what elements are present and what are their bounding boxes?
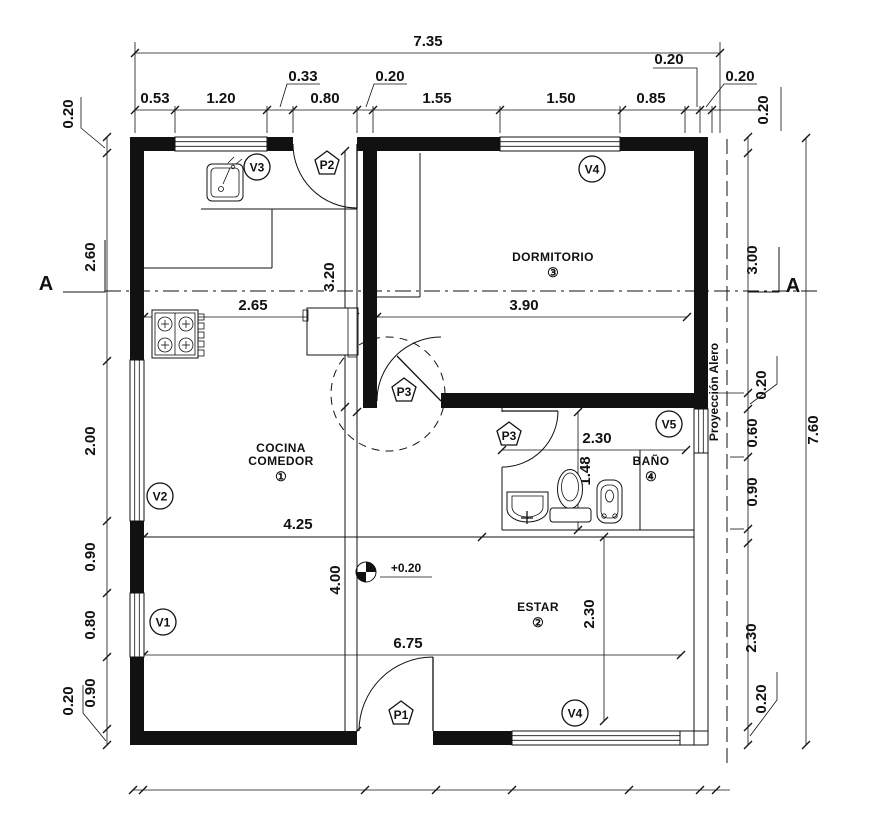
dim-living-width: 6.75 xyxy=(393,635,422,652)
dim-right-2: 3.00 xyxy=(744,245,761,274)
window-v4-top xyxy=(500,137,620,151)
dim-offset-020c: 0.20 xyxy=(725,68,754,85)
cabinet xyxy=(303,308,358,357)
section-label-right: A xyxy=(786,275,800,297)
tag-p3-bath: P3 xyxy=(502,429,517,443)
tag-p1: P1 xyxy=(394,708,409,722)
window-v1 xyxy=(130,593,144,657)
dim-overall-height: 7.60 xyxy=(805,415,822,444)
room-bath-name: BAÑO xyxy=(633,453,670,468)
room-kitchen-line1: COCINA xyxy=(256,441,306,455)
dim-left-7: 0.20 xyxy=(60,686,77,715)
dim-right-7: 0.20 xyxy=(753,684,770,713)
room-living-name: ESTAR xyxy=(517,600,559,614)
stove xyxy=(152,310,204,358)
floor-plan-page: A A Proyección Alero 2.65 3.90 3. xyxy=(0,0,875,815)
tag-p2: P2 xyxy=(320,158,335,172)
dim-top-4: 1.55 xyxy=(422,90,451,107)
dim-top-3: 0.80 xyxy=(310,90,339,107)
dim-bedroom-width: 3.90 xyxy=(509,297,538,314)
dim-bath-width: 2.30 xyxy=(582,430,611,447)
bidet xyxy=(597,480,622,523)
dim-passage-height: 3.20 xyxy=(321,262,338,291)
dim-top-2: 1.20 xyxy=(206,90,235,107)
dim-offset-020a: 0.20 xyxy=(375,68,404,85)
tag-p3-bedroom: P3 xyxy=(397,385,412,399)
dim-living-height: 2.30 xyxy=(581,599,598,628)
tag-v5: V5 xyxy=(662,418,677,432)
dim-passage-depth: 4.00 xyxy=(327,565,344,594)
dim-right-4: 0.60 xyxy=(744,418,761,447)
level-value: +0.20 xyxy=(391,561,422,575)
section-label-left: A xyxy=(39,273,53,295)
dim-offset-033: 0.33 xyxy=(288,68,317,85)
tag-v2: V2 xyxy=(153,490,168,504)
dim-left-3: 2.00 xyxy=(82,426,99,455)
room-bath-number: ④ xyxy=(645,469,657,484)
dim-right-6: 2.30 xyxy=(743,623,760,652)
room-living-number: ② xyxy=(532,615,544,630)
window-v5 xyxy=(694,409,708,453)
room-bedroom-number: ③ xyxy=(547,265,559,280)
dim-left-1: 0.20 xyxy=(60,99,77,128)
dim-top-6: 0.85 xyxy=(636,90,665,107)
room-kitchen-number: ① xyxy=(275,469,287,484)
tag-v3: V3 xyxy=(250,161,265,175)
dim-top-1: 0.53 xyxy=(140,90,169,107)
eave-label: Proyección Alero xyxy=(707,343,721,441)
window-v2 xyxy=(130,360,144,521)
tag-v1: V1 xyxy=(156,616,171,630)
dim-overall-width: 7.35 xyxy=(413,33,442,50)
dim-top-5: 1.50 xyxy=(546,90,575,107)
room-bedroom-name: DORMITORIO xyxy=(512,250,594,264)
window-v3 xyxy=(175,137,267,151)
dim-offset-020d: 0.20 xyxy=(755,95,772,124)
dim-kitchen-total: 4.25 xyxy=(283,516,312,533)
room-kitchen-line2: COMEDOR xyxy=(248,454,313,468)
dim-kitchen-width: 2.65 xyxy=(238,297,267,314)
tag-v4-bottom: V4 xyxy=(568,707,583,721)
dim-offset-020b: 0.20 xyxy=(654,51,683,68)
floor-plan-drawing: A A Proyección Alero 2.65 3.90 3. xyxy=(0,0,875,815)
dim-left-4: 0.90 xyxy=(82,542,99,571)
tag-v4-top: V4 xyxy=(585,163,600,177)
dim-right-5: 0.90 xyxy=(744,477,761,506)
dim-left-5: 0.80 xyxy=(82,610,99,639)
window-v4-bottom xyxy=(512,731,680,745)
dim-left-6: 0.90 xyxy=(82,678,99,707)
kitchen-sink xyxy=(207,157,243,201)
dim-left-2: 2.60 xyxy=(82,242,99,271)
